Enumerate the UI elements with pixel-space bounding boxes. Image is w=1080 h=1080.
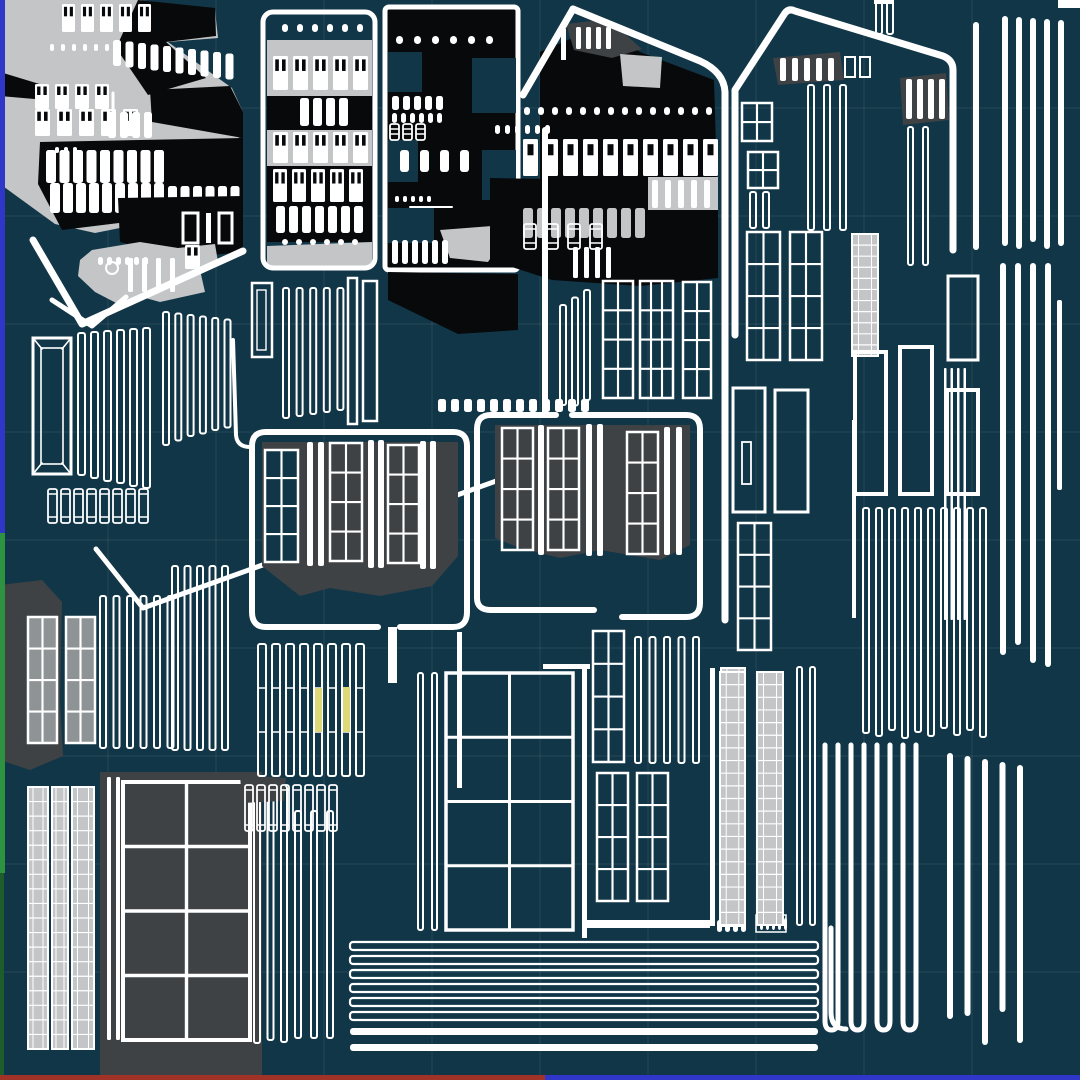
yellow-strip-2 bbox=[343, 687, 350, 732]
isl2-combs-2 bbox=[276, 206, 363, 233]
isl2-row-c bbox=[273, 132, 368, 163]
tr-strip-single bbox=[973, 22, 979, 250]
isl1-stub bbox=[388, 627, 397, 683]
isl2r-bar-1 bbox=[538, 425, 544, 555]
edge-left-blue bbox=[0, 0, 5, 533]
isl3-teal-5 bbox=[388, 208, 434, 243]
uv-layout-canvas bbox=[0, 0, 1080, 1080]
rc-strip bbox=[710, 668, 715, 926]
lb-ladder-3 bbox=[72, 787, 94, 1049]
lb-window-2 bbox=[66, 617, 95, 743]
top-pair-cap bbox=[874, 0, 894, 4]
edge-bottom-red bbox=[0, 1075, 545, 1080]
lb-ladder-2 bbox=[52, 787, 68, 1049]
h2-gray-combs bbox=[523, 208, 645, 238]
isl2-row-b bbox=[273, 56, 368, 90]
comb-blob bbox=[240, 775, 286, 803]
edge-bottom-blue bbox=[545, 1075, 1080, 1080]
isl2-gray-3 bbox=[267, 242, 372, 266]
isl2-row-d bbox=[273, 169, 363, 202]
edge-left-green-dark bbox=[0, 873, 4, 1080]
yellow-strip-1 bbox=[315, 688, 322, 732]
isl2r-dark-blob bbox=[495, 425, 690, 560]
lb-ladder-1 bbox=[28, 787, 48, 1049]
br-ladder-1 bbox=[720, 672, 745, 925]
center-vline bbox=[457, 632, 462, 788]
tr-corner-piece bbox=[1058, 0, 1080, 8]
h2-gray-blob bbox=[620, 54, 662, 88]
tl-combs-e bbox=[46, 150, 164, 183]
tl-square-glyph-bar bbox=[206, 213, 211, 243]
br-ladder-2 bbox=[757, 672, 783, 925]
mr-line-single bbox=[852, 420, 856, 618]
bottom-solid-bar-2 bbox=[350, 1044, 818, 1051]
edge-left-green bbox=[0, 533, 5, 873]
bracket-vert bbox=[582, 664, 587, 938]
bracket-bottom bbox=[582, 920, 710, 928]
isl3-teal-1 bbox=[388, 52, 422, 92]
isl1-window-a bbox=[265, 450, 298, 562]
h3-ladder bbox=[852, 234, 878, 356]
isl3-teal-2 bbox=[472, 58, 516, 113]
lb-window-1 bbox=[28, 617, 57, 743]
blob-window-glyph bbox=[185, 245, 200, 269]
bottom-solid-bar-1 bbox=[350, 1028, 818, 1035]
uv-texture-image bbox=[0, 0, 1080, 1080]
tr-strip-b2 bbox=[1057, 300, 1062, 490]
